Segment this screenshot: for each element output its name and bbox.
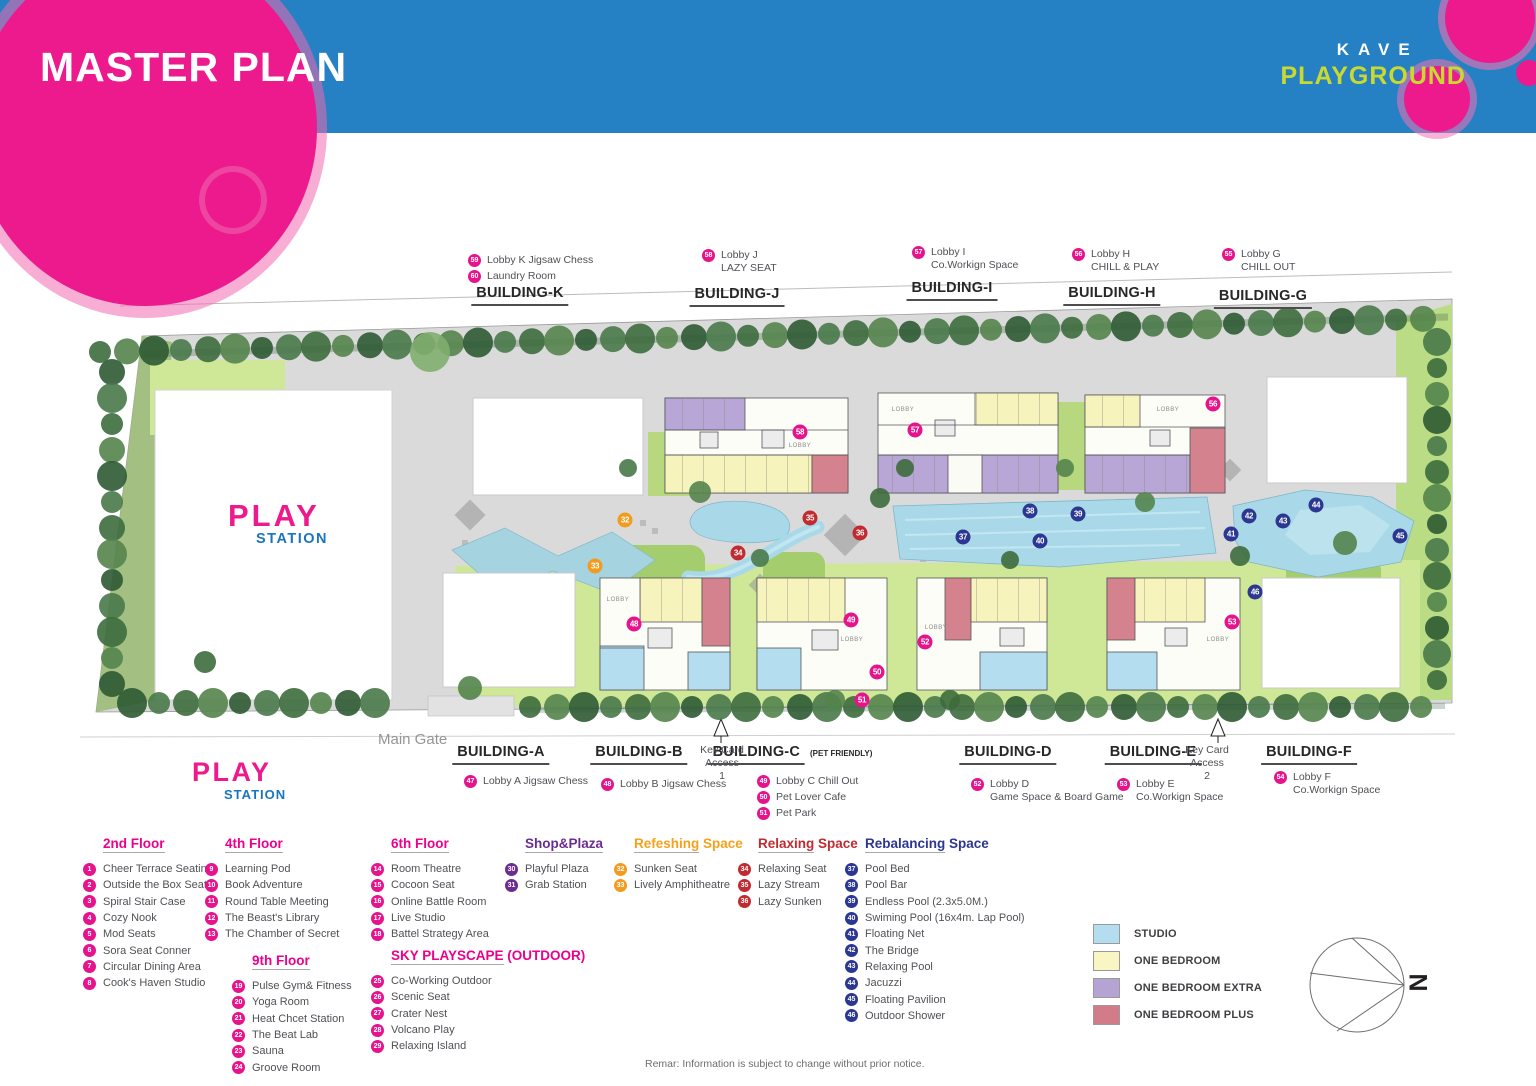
lobby-note-59: 59Lobby K Jigsaw Chess: [468, 254, 593, 267]
legend-item-42: 42The Bridge: [845, 942, 1025, 958]
note-badge: 60: [468, 270, 481, 283]
legend-item-label: Crater Nest: [391, 1008, 447, 1020]
legend-item-label: Relaxing Seat: [758, 863, 827, 875]
legend-section-8: Rebalancing Space37Pool Bed38Pool Bar39E…: [845, 836, 1025, 1024]
unit-color-swatch: [1093, 924, 1120, 944]
legend-item-label: Mod Seats: [103, 928, 156, 940]
building-b-plan: [600, 578, 730, 690]
building-h-plan: [1085, 395, 1225, 493]
note-badge: 58: [702, 249, 715, 262]
legend-item-label: Spiral Stair Case: [103, 896, 186, 908]
legend-item-badge: 38: [845, 879, 858, 892]
legend-item-badge: 18: [371, 928, 384, 941]
legend-item-label: Sunken Seat: [634, 863, 697, 875]
legend-section-6: Refeshing Space32Sunken Seat33Lively Amp…: [614, 836, 743, 894]
note-text: Pet Park: [776, 807, 816, 820]
main-gate-label: Main Gate: [378, 731, 447, 748]
legend-item-43: 43Relaxing Pool: [845, 959, 1025, 975]
unit-type-label: ONE BEDROOM PLUS: [1134, 1009, 1254, 1021]
lobby-note-56: 56Lobby HCHILL & PLAY: [1072, 248, 1159, 273]
keycard-access-2: Key CardAccess2: [1185, 744, 1229, 783]
legend-item-27: 27Crater Nest: [371, 1006, 585, 1022]
legend-item-28: 28Volcano Play: [371, 1022, 585, 1038]
brand-logo: KAVE PLAYGROUND: [1281, 40, 1467, 91]
legend-item-badge: 17: [371, 912, 384, 925]
note-line: Laundry Room: [487, 270, 556, 283]
legend-item-46: 46Outdoor Shower: [845, 1008, 1025, 1024]
legend-item-7: 7Circular Dining Area: [83, 959, 213, 975]
legend-item-label: Jacuzzi: [865, 977, 902, 989]
brand-playground: PLAYGROUND: [1281, 62, 1467, 91]
legend-item-41: 41Floating Net: [845, 926, 1025, 942]
map-marker-38: 38: [1023, 504, 1038, 519]
note-text: Lobby FCo.Workign Space: [1293, 771, 1380, 796]
unit-legend-row: ONE BEDROOM EXTRA: [1093, 978, 1262, 998]
building-g-block: [1267, 377, 1407, 483]
legend-item-9: 9Learning Pod: [205, 861, 339, 877]
legend-section-4: SKY PLAYSCAPE (OUTDOOR)25Co-Working Outd…: [371, 948, 585, 1054]
legend-item-badge: 10: [205, 879, 218, 892]
legend-item-badge: 19: [232, 980, 245, 993]
note-badge: 56: [1072, 248, 1085, 261]
legend-item-badge: 7: [83, 960, 96, 973]
map-marker-45: 45: [1393, 529, 1408, 544]
building-a-block: [443, 573, 575, 687]
legend-item-label: Scenic Seat: [391, 991, 450, 1003]
building-label-building-g: BUILDING-G: [1214, 288, 1312, 309]
note-badge: 53: [1117, 778, 1130, 791]
building-name: BUILDING-K: [471, 285, 568, 306]
unit-type-label: STUDIO: [1134, 928, 1177, 940]
building-name: BUILDING-I: [907, 280, 998, 301]
legend-item-29: 29Relaxing Island: [371, 1038, 585, 1054]
note-line: Co.Workign Space: [931, 259, 1018, 272]
building-e-plan: [1107, 578, 1240, 690]
building-suffix: (PET FRIENDLY): [810, 749, 872, 758]
legend-item-label: Round Table Meeting: [225, 896, 329, 908]
legend-section-title: Relaxing Space: [758, 836, 858, 851]
lobby-note-49: 49Lobby C Chill Out: [757, 775, 858, 788]
legend-section-title: Shop&Plaza: [525, 836, 603, 851]
legend-item-17: 17Live Studio: [371, 910, 489, 926]
legend-section-title: 6th Floor: [391, 836, 489, 851]
legend-item-badge: 40: [845, 912, 858, 925]
legend-item-badge: 20: [232, 996, 245, 1009]
building-name: BUILDING-G: [1214, 288, 1312, 309]
north-compass: [1310, 938, 1404, 1032]
legend-item-label: Endless Pool (2.3x5.0M.): [865, 896, 988, 908]
play-station-subtitle-2: STATION: [224, 787, 286, 802]
note-line: Lobby K Jigsaw Chess: [487, 254, 593, 267]
building-j-plan: [665, 398, 848, 493]
map-marker-39: 39: [1071, 507, 1086, 522]
building-name: BUILDING-A: [452, 744, 549, 765]
building-label-building-i: BUILDING-I: [907, 280, 998, 301]
legend-item-badge: 44: [845, 977, 858, 990]
note-line: Pet Lover Cafe: [776, 791, 846, 804]
building-label-building-f: BUILDING-F: [1261, 744, 1357, 765]
legend-item-badge: 8: [83, 977, 96, 990]
legend-item-16: 16Online Battle Room: [371, 894, 489, 910]
legend-item-badge: 26: [371, 991, 384, 1004]
legend-item-label: Floating Net: [865, 928, 924, 940]
legend-item-label: Cocoon Seat: [391, 879, 455, 891]
lobby-label: LOBBY: [1207, 637, 1230, 643]
note-text: Pet Lover Cafe: [776, 791, 846, 804]
legend-item-label: Live Studio: [391, 912, 445, 924]
building-k-block: [473, 398, 643, 495]
legend-item-2: 2Outside the Box Seat: [83, 877, 213, 893]
legend-item-badge: 4: [83, 912, 96, 925]
building-c-plan: [757, 578, 887, 690]
legend-item-label: Heat Chcet Station: [252, 1013, 344, 1025]
legend-item-33: 33Lively Amphitheatre: [614, 877, 743, 893]
play-station-subtitle: STATION: [256, 531, 328, 547]
legend-item-label: Volcano Play: [391, 1024, 455, 1036]
legend-item-label: Pool Bar: [865, 879, 907, 891]
lobby-label: LOBBY: [841, 637, 864, 643]
note-line: Lobby F: [1293, 771, 1380, 784]
legend-item-badge: 33: [614, 879, 627, 892]
note-line: Co.Workign Space: [1136, 791, 1223, 804]
legend-section-title: Refeshing Space: [634, 836, 743, 851]
legend-item-badge: 15: [371, 879, 384, 892]
unit-color-swatch: [1093, 951, 1120, 971]
keycard-access-1: Key CardAccess1: [700, 744, 744, 783]
legend-item-badge: 27: [371, 1007, 384, 1020]
legend-item-3: 3Spiral Stair Case: [83, 894, 213, 910]
building-name: BUILDING-H: [1063, 285, 1160, 306]
legend-section-title: 9th Floor: [252, 953, 352, 968]
unit-type-label: ONE BEDROOM: [1134, 955, 1221, 967]
legend-item-label: Outside the Box Seat: [103, 879, 207, 891]
legend-item-label: Sauna: [252, 1045, 284, 1057]
map-marker-37: 37: [956, 530, 971, 545]
unit-color-swatch: [1093, 1005, 1120, 1025]
note-line: CHILL & PLAY: [1091, 261, 1159, 274]
legend-item-25: 25Co-Working Outdoor: [371, 973, 585, 989]
legend-item-20: 20Yoga Room: [232, 994, 352, 1010]
unit-legend-row: ONE BEDROOM: [1093, 951, 1221, 971]
legend-item-10: 10Book Adventure: [205, 877, 339, 893]
legend-item-badge: 42: [845, 944, 858, 957]
note-line: Game Space & Board Game: [990, 791, 1124, 804]
lobby-note-50: 50Pet Lover Cafe: [757, 791, 846, 804]
map-marker-40: 40: [1033, 534, 1048, 549]
legend-item-label: The Chamber of Secret: [225, 928, 339, 940]
note-text: Lobby ICo.Workign Space: [931, 246, 1018, 271]
lobby-note-55: 55Lobby GCHILL OUT: [1222, 248, 1295, 273]
lobby-note-47: 47Lobby A Jigsaw Chess: [464, 775, 588, 788]
legend-item-13: 13The Chamber of Secret: [205, 926, 339, 942]
building-label-building-b: BUILDING-B: [590, 744, 687, 765]
legend-item-24: 24Groove Room: [232, 1059, 352, 1075]
keycard-line: Access: [1185, 757, 1229, 770]
legend-item-badge: 46: [845, 1009, 858, 1022]
note-line: Lobby H: [1091, 248, 1159, 261]
legend-item-40: 40Swiming Pool (16x4m. Lap Pool): [845, 910, 1025, 926]
lobby-note-57: 57Lobby ICo.Workign Space: [912, 246, 1018, 271]
page-title: MASTER PLAN: [40, 44, 347, 91]
legend-item-badge: 11: [205, 895, 218, 908]
unit-legend-row: ONE BEDROOM PLUS: [1093, 1005, 1254, 1025]
lobby-label: LOBBY: [789, 443, 812, 449]
legend-item-badge: 13: [205, 928, 218, 941]
map-marker-44: 44: [1309, 498, 1324, 513]
legend-item-8: 8Cook's Haven Studio: [83, 975, 213, 991]
legend-item-badge: 5: [83, 928, 96, 941]
note-badge: 54: [1274, 771, 1287, 784]
legend-item-label: Lively Amphitheatre: [634, 879, 730, 891]
map-marker-50: 50: [870, 665, 885, 680]
legend-item-badge: 31: [505, 879, 518, 892]
legend-item-30: 30Playful Plaza: [505, 861, 603, 877]
note-text: Lobby A Jigsaw Chess: [483, 775, 588, 788]
map-marker-32: 32: [618, 513, 633, 528]
master-plan-slide: MASTER PLAN KAVE PLAYGROUND PLAY STATION…: [0, 0, 1536, 1086]
legend-item-35: 35Lazy Stream: [738, 877, 858, 893]
building-name: BUILDING-D: [959, 744, 1056, 765]
legend-item-6: 6Sora Seat Conner: [83, 942, 213, 958]
legend-item-5: 5Mod Seats: [83, 926, 213, 942]
keycard-line: 2: [1185, 770, 1229, 783]
map-marker-58: 58: [793, 425, 808, 440]
legend-item-39: 39Endless Pool (2.3x5.0M.): [845, 894, 1025, 910]
legend-item-label: Lazy Stream: [758, 879, 820, 891]
legend-item-badge: 3: [83, 895, 96, 908]
lobby-note-54: 54Lobby FCo.Workign Space: [1274, 771, 1380, 796]
note-badge: 59: [468, 254, 481, 267]
building-label-building-a: BUILDING-A: [452, 744, 549, 765]
map-marker-35: 35: [803, 511, 818, 526]
legend-item-badge: 39: [845, 895, 858, 908]
unit-color-swatch: [1093, 978, 1120, 998]
map-marker-42: 42: [1242, 509, 1257, 524]
legend-item-label: Pool Bed: [865, 863, 910, 875]
legend-item-19: 19Pulse Gym& Fitness: [232, 978, 352, 994]
legend-item-31: 31Grab Station: [505, 877, 603, 893]
note-badge: 50: [757, 791, 770, 804]
legend-item-label: Cook's Haven Studio: [103, 977, 205, 989]
legend-item-11: 11Round Table Meeting: [205, 894, 339, 910]
legend-item-badge: 21: [232, 1012, 245, 1025]
note-line: Lobby G: [1241, 248, 1295, 261]
legend-item-label: Circular Dining Area: [103, 961, 201, 973]
note-line: Lobby C Chill Out: [776, 775, 858, 788]
note-badge: 52: [971, 778, 984, 791]
north-label: N: [1403, 973, 1432, 991]
map-marker-48: 48: [627, 617, 642, 632]
legend-item-badge: 36: [738, 895, 751, 908]
legend-section-1: 4th Floor9Learning Pod10Book Adventure11…: [205, 836, 339, 942]
map-marker-34: 34: [731, 546, 746, 561]
note-text: Lobby C Chill Out: [776, 775, 858, 788]
map-marker-36: 36: [853, 526, 868, 541]
legend-item-label: The Beat Lab: [252, 1029, 318, 1041]
legend-item-22: 22The Beat Lab: [232, 1027, 352, 1043]
legend-section-title: 4th Floor: [225, 836, 339, 851]
note-badge: 49: [757, 775, 770, 788]
building-name: BUILDING-J: [690, 286, 785, 307]
note-line: Pet Park: [776, 807, 816, 820]
play-station-title: PLAY: [228, 498, 320, 534]
legend-item-37: 37Pool Bed: [845, 861, 1025, 877]
legend-item-label: Playful Plaza: [525, 863, 589, 875]
legend-section-title: Rebalancing Space: [865, 836, 1025, 851]
keycard-line: 1: [700, 770, 744, 783]
legend-item-label: Book Adventure: [225, 879, 303, 891]
lobby-label: LOBBY: [925, 625, 948, 631]
note-line: Lobby I: [931, 246, 1018, 259]
legend-item-label: Cozy Nook: [103, 912, 157, 924]
legend-item-badge: 2: [83, 879, 96, 892]
map-marker-49: 49: [844, 613, 859, 628]
note-text: Lobby K Jigsaw Chess: [487, 254, 593, 267]
legend-item-label: Room Theatre: [391, 863, 461, 875]
legend-item-badge: 24: [232, 1061, 245, 1074]
building-name: BUILDING-B: [590, 744, 687, 765]
legend-item-label: Groove Room: [252, 1062, 320, 1074]
legend-item-label: Outdoor Shower: [865, 1010, 945, 1022]
note-text: Laundry Room: [487, 270, 556, 283]
legend-item-label: Cheer Terrace Seating: [103, 863, 213, 875]
legend-item-badge: 6: [83, 944, 96, 957]
legend-item-badge: 16: [371, 895, 384, 908]
keycard-line: Access: [700, 757, 744, 770]
legend-item-label: Relaxing Island: [391, 1040, 466, 1052]
map-marker-33: 33: [588, 559, 603, 574]
note-text: Lobby DGame Space & Board Game: [990, 778, 1124, 803]
lobby-note-58: 58Lobby JLAZY SEAT: [702, 249, 777, 274]
legend-item-badge: 35: [738, 879, 751, 892]
note-line: Lobby A Jigsaw Chess: [483, 775, 588, 788]
legend-item-badge: 25: [371, 975, 384, 988]
map-marker-56: 56: [1206, 397, 1221, 412]
legend-item-badge: 30: [505, 863, 518, 876]
legend-item-badge: 1: [83, 863, 96, 876]
legend-item-15: 15Cocoon Seat: [371, 877, 489, 893]
legend-item-36: 36Lazy Sunken: [738, 894, 858, 910]
legend-item-23: 23Sauna: [232, 1043, 352, 1059]
note-badge: 48: [601, 778, 614, 791]
legend-item-badge: 41: [845, 928, 858, 941]
legend-section-title: SKY PLAYSCAPE (OUTDOOR): [391, 948, 585, 963]
map-marker-52: 52: [918, 635, 933, 650]
legend-section-0: 2nd Floor1Cheer Terrace Seating2Outside …: [83, 836, 213, 991]
legend-item-badge: 14: [371, 863, 384, 876]
building-d-plan: [917, 578, 1047, 690]
note-text: Lobby HCHILL & PLAY: [1091, 248, 1159, 273]
legend-item-badge: 28: [371, 1024, 384, 1037]
building-name: BUILDING-F: [1261, 744, 1357, 765]
lobby-label: LOBBY: [892, 407, 915, 413]
legend-section-2: 9th Floor19Pulse Gym& Fitness20Yoga Room…: [232, 953, 352, 1076]
map-marker-57: 57: [908, 423, 923, 438]
map-marker-51: 51: [855, 693, 870, 708]
legend-item-18: 18Battel Strategy Area: [371, 926, 489, 942]
legend-section-5: Shop&Plaza30Playful Plaza31Grab Station: [505, 836, 603, 894]
map-marker-41: 41: [1224, 527, 1239, 542]
building-label-building-j: BUILDING-J: [690, 286, 785, 307]
lobby-label: LOBBY: [1157, 407, 1180, 413]
note-line: CHILL OUT: [1241, 261, 1295, 274]
legend-item-label: The Bridge: [865, 945, 919, 957]
legend-item-badge: 34: [738, 863, 751, 876]
legend-item-badge: 37: [845, 863, 858, 876]
map-marker-53: 53: [1225, 615, 1240, 630]
building-label-building-h: BUILDING-H: [1063, 285, 1160, 306]
brand-kave: KAVE: [1290, 40, 1467, 60]
legend-item-label: Floating Pavilion: [865, 994, 946, 1006]
legend-item-label: The Beast's Library: [225, 912, 319, 924]
legend-item-label: Yoga Room: [252, 996, 309, 1008]
legend-item-label: Relaxing Pool: [865, 961, 933, 973]
legend-item-label: Pulse Gym& Fitness: [252, 980, 352, 992]
legend-item-badge: 32: [614, 863, 627, 876]
legend-item-38: 38Pool Bar: [845, 877, 1025, 893]
legend-item-label: Co-Working Outdoor: [391, 975, 492, 987]
building-label-building-k: BUILDING-K: [471, 285, 568, 306]
legend-item-badge: 43: [845, 960, 858, 973]
legend-section-7: Relaxing Space34Relaxing Seat35Lazy Stre…: [738, 836, 858, 910]
legend-item-26: 26Scenic Seat: [371, 989, 585, 1005]
building-label-building-d: BUILDING-D: [959, 744, 1056, 765]
legend-item-badge: 9: [205, 863, 218, 876]
play-station-title-2: PLAY: [192, 757, 272, 788]
legend-item-1: 1Cheer Terrace Seating: [83, 861, 213, 877]
legend-item-label: Lazy Sunken: [758, 896, 822, 908]
legend-item-14: 14Room Theatre: [371, 861, 489, 877]
note-text: Lobby JLAZY SEAT: [721, 249, 777, 274]
legend-item-badge: 29: [371, 1040, 384, 1053]
legend-item-label: Sora Seat Conner: [103, 945, 191, 957]
legend-item-label: Learning Pod: [225, 863, 290, 875]
disclaimer-note: Remar: Information is subject to change …: [645, 1058, 925, 1070]
legend-item-45: 45Floating Pavilion: [845, 991, 1025, 1007]
unit-legend-row: STUDIO: [1093, 924, 1177, 944]
legend-item-label: Battel Strategy Area: [391, 928, 489, 940]
legend-section-title: 2nd Floor: [103, 836, 213, 851]
lobby-note-51: 51Pet Park: [757, 807, 816, 820]
legend-item-12: 12The Beast's Library: [205, 910, 339, 926]
legend-item-44: 44Jacuzzi: [845, 975, 1025, 991]
legend-item-21: 21Heat Chcet Station: [232, 1011, 352, 1027]
legend-item-label: Online Battle Room: [391, 896, 486, 908]
note-line: Lobby J: [721, 249, 777, 262]
pink-blob: [1516, 60, 1536, 86]
keycard-arrows: [714, 719, 1225, 743]
note-line: LAZY SEAT: [721, 262, 777, 275]
note-badge: 47: [464, 775, 477, 788]
legend-item-label: Grab Station: [525, 879, 587, 891]
building-f-block: [1262, 578, 1400, 688]
note-text: Lobby GCHILL OUT: [1241, 248, 1295, 273]
note-badge: 55: [1222, 248, 1235, 261]
legend-item-badge: 12: [205, 912, 218, 925]
legend-item-32: 32Sunken Seat: [614, 861, 743, 877]
legend-item-label: Swiming Pool (16x4m. Lap Pool): [865, 912, 1025, 924]
lobby-label: LOBBY: [607, 597, 630, 603]
lobby-note-60: 60Laundry Room: [468, 270, 556, 283]
map-marker-43: 43: [1276, 514, 1291, 529]
note-badge: 57: [912, 246, 925, 259]
unit-type-label: ONE BEDROOM EXTRA: [1134, 982, 1262, 994]
legend-item-badge: 23: [232, 1045, 245, 1058]
legend-item-34: 34Relaxing Seat: [738, 861, 858, 877]
keycard-line: Key Card: [1185, 744, 1229, 757]
note-line: Lobby D: [990, 778, 1124, 791]
map-marker-46: 46: [1248, 585, 1263, 600]
